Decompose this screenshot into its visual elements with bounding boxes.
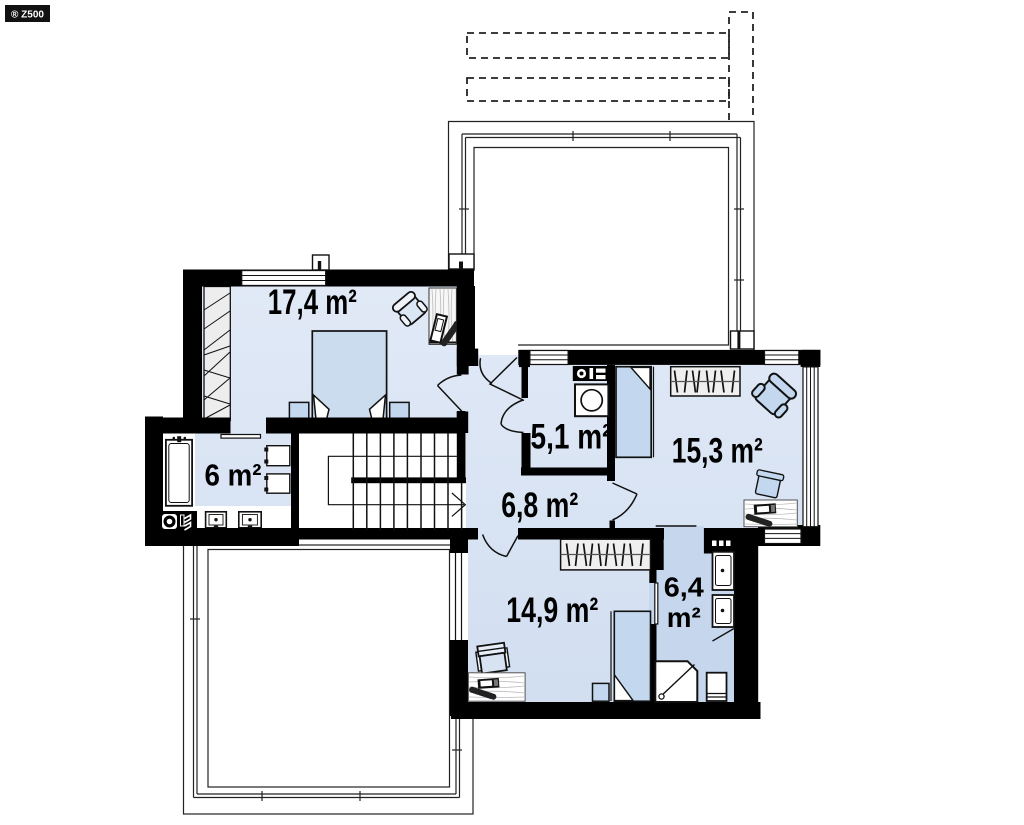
svg-text:15,3 m²: 15,3 m²	[672, 432, 763, 471]
svg-text:6,4: 6,4	[664, 571, 704, 602]
svg-text:14,9 m²: 14,9 m²	[506, 591, 598, 630]
svg-text:® Z500: ® Z500	[11, 10, 44, 21]
svg-text:6 m²: 6 m²	[205, 458, 262, 493]
svg-text:5,1 m²: 5,1 m²	[531, 418, 612, 457]
svg-text:m²: m²	[667, 602, 701, 633]
svg-text:6,8 m²: 6,8 m²	[501, 486, 578, 525]
svg-text:17,4 m²: 17,4 m²	[268, 283, 357, 322]
